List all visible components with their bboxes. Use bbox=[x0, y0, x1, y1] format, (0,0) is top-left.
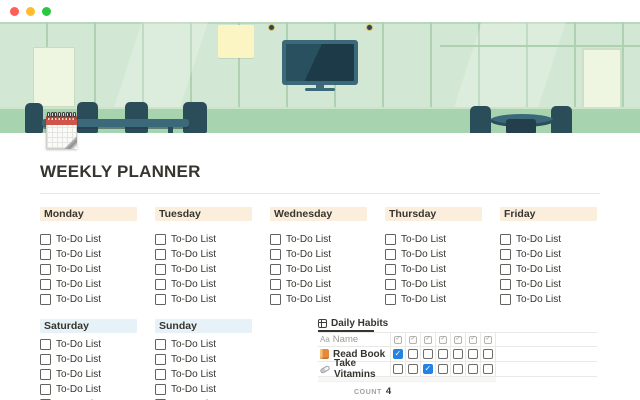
habit-checkbox[interactable] bbox=[408, 349, 418, 359]
habit-check-cell[interactable] bbox=[421, 362, 436, 377]
todo-label[interactable]: To-Do List bbox=[56, 384, 101, 395]
habit-checkbox[interactable] bbox=[483, 349, 493, 359]
header-filler-cell bbox=[496, 333, 597, 347]
habit-check-cell[interactable] bbox=[451, 347, 466, 362]
cover-tv bbox=[282, 40, 358, 85]
todo-item: To-Do List bbox=[155, 292, 252, 307]
checkbox-column-header[interactable] bbox=[481, 333, 496, 347]
todo-checkbox[interactable] bbox=[500, 279, 511, 290]
habit-check-cell[interactable] bbox=[451, 362, 466, 377]
todo-checkbox[interactable] bbox=[270, 279, 281, 290]
todo-item: To-Do List bbox=[155, 262, 252, 277]
todo-label[interactable]: To-Do List bbox=[401, 234, 446, 245]
day-header[interactable]: Wednesday bbox=[270, 207, 367, 221]
day-header[interactable]: Thursday bbox=[385, 207, 482, 221]
count-label: COUNT bbox=[354, 389, 382, 396]
cover-flipchart-board bbox=[33, 47, 75, 107]
cover-tv-screen bbox=[286, 44, 354, 81]
habit-checkbox[interactable] bbox=[423, 364, 433, 374]
day-header[interactable]: Monday bbox=[40, 207, 137, 221]
count-footer[interactable]: COUNT 4 bbox=[318, 386, 597, 397]
habits-table: AaNameRead BookTake Vitamins bbox=[318, 333, 597, 377]
todo-label[interactable]: To-Do List bbox=[56, 249, 101, 260]
todo-label[interactable]: To-Do List bbox=[401, 249, 446, 260]
book-emoji-icon bbox=[320, 349, 329, 359]
todo-list: To-Do ListTo-Do ListTo-Do ListTo-Do List… bbox=[155, 232, 252, 307]
day-column-tuesday: TuesdayTo-Do ListTo-Do ListTo-Do ListTo-… bbox=[155, 207, 252, 307]
todo-checkbox[interactable] bbox=[155, 354, 166, 365]
todo-label[interactable]: To-Do List bbox=[401, 264, 446, 275]
tab-rule bbox=[318, 330, 597, 333]
name-column-label: Name bbox=[333, 334, 358, 345]
todo-checkbox[interactable] bbox=[270, 234, 281, 245]
todo-label[interactable]: To-Do List bbox=[171, 384, 216, 395]
todo-item: To-Do List bbox=[40, 352, 137, 367]
cover-chair bbox=[506, 119, 536, 133]
todo-item: To-Do List bbox=[385, 292, 482, 307]
count-value: 4 bbox=[386, 386, 391, 397]
todo-label[interactable]: To-Do List bbox=[171, 234, 216, 245]
cover-wall-seam bbox=[440, 45, 640, 47]
todo-item: To-Do List bbox=[270, 292, 367, 307]
todo-item: To-Do List bbox=[500, 277, 597, 292]
todo-checkbox[interactable] bbox=[155, 249, 166, 260]
cover-image bbox=[0, 22, 640, 133]
todo-checkbox[interactable] bbox=[500, 234, 511, 245]
day-column-thursday: ThursdayTo-Do ListTo-Do ListTo-Do ListTo… bbox=[385, 207, 482, 307]
name-column-header[interactable]: AaName bbox=[318, 333, 391, 347]
checkbox-column-header[interactable] bbox=[406, 333, 421, 347]
cover-chair bbox=[77, 102, 98, 133]
todo-checkbox[interactable] bbox=[155, 264, 166, 275]
cover-chair bbox=[183, 102, 207, 133]
habit-checkbox[interactable] bbox=[468, 364, 478, 374]
todo-label[interactable]: To-Do List bbox=[171, 339, 216, 350]
todo-label[interactable]: To-Do List bbox=[56, 369, 101, 380]
todo-list: To-Do ListTo-Do ListTo-Do ListTo-Do List… bbox=[40, 232, 137, 307]
todo-item: To-Do List bbox=[155, 232, 252, 247]
day-header[interactable]: Friday bbox=[500, 207, 597, 221]
maximize-button[interactable] bbox=[42, 7, 51, 16]
todo-item: To-Do List bbox=[40, 337, 137, 352]
todo-label[interactable]: To-Do List bbox=[516, 279, 561, 290]
todo-label[interactable]: To-Do List bbox=[56, 339, 101, 350]
habit-check-cell[interactable] bbox=[391, 362, 406, 377]
todo-item: To-Do List bbox=[385, 232, 482, 247]
day-column-sunday: SundayTo-Do ListTo-Do ListTo-Do ListTo-D… bbox=[155, 319, 252, 400]
cover-table-leg bbox=[168, 127, 173, 133]
todo-checkbox[interactable] bbox=[270, 294, 281, 305]
habit-check-cell[interactable] bbox=[466, 362, 481, 377]
habit-checkbox[interactable] bbox=[393, 349, 403, 359]
habits-view-tab[interactable]: Daily Habits bbox=[318, 317, 597, 329]
todo-item: To-Do List bbox=[385, 277, 482, 292]
close-button[interactable] bbox=[10, 7, 19, 16]
day-header[interactable]: Saturday bbox=[40, 319, 137, 333]
todo-list: To-Do ListTo-Do ListTo-Do ListTo-Do List… bbox=[270, 232, 367, 307]
todo-item: To-Do List bbox=[270, 247, 367, 262]
habit-checkbox[interactable] bbox=[423, 349, 433, 359]
todo-checkbox[interactable] bbox=[40, 339, 51, 350]
pill-emoji-icon bbox=[319, 364, 330, 373]
cover-chair bbox=[125, 102, 148, 133]
todo-item: To-Do List bbox=[385, 262, 482, 277]
todo-checkbox[interactable] bbox=[385, 264, 396, 275]
row-filler-cell bbox=[496, 347, 597, 362]
cover-tv-base bbox=[305, 88, 335, 91]
day-column-friday: FridayTo-Do ListTo-Do ListTo-Do ListTo-D… bbox=[500, 207, 597, 307]
habit-name: Take Vitamins bbox=[334, 358, 390, 380]
minimize-button[interactable] bbox=[26, 7, 35, 16]
todo-item: To-Do List bbox=[155, 367, 252, 382]
habit-checkbox[interactable] bbox=[453, 364, 463, 374]
habits-tab-label: Daily Habits bbox=[331, 318, 388, 329]
checkbox-column-icon bbox=[469, 336, 477, 344]
cover-wall-pin bbox=[268, 24, 275, 31]
todo-checkbox[interactable] bbox=[40, 234, 51, 245]
todo-label[interactable]: To-Do List bbox=[286, 234, 331, 245]
habit-check-cell[interactable] bbox=[436, 347, 451, 362]
todo-item: To-Do List bbox=[40, 382, 137, 397]
habit-check-cell[interactable] bbox=[406, 347, 421, 362]
todo-checkbox[interactable] bbox=[40, 384, 51, 395]
cover-yellow-poster bbox=[218, 25, 254, 58]
todo-list: To-Do ListTo-Do ListTo-Do ListTo-Do List… bbox=[500, 232, 597, 307]
habit-checkbox[interactable] bbox=[393, 364, 403, 374]
todo-item: To-Do List bbox=[40, 277, 137, 292]
window-titlebar bbox=[0, 0, 640, 22]
todo-item: To-Do List bbox=[270, 262, 367, 277]
day-column-wednesday: WednesdayTo-Do ListTo-Do ListTo-Do ListT… bbox=[270, 207, 367, 307]
todo-checkbox[interactable] bbox=[500, 249, 511, 260]
todo-checkbox[interactable] bbox=[155, 294, 166, 305]
todo-item: To-Do List bbox=[40, 262, 137, 277]
text-property-icon: Aa bbox=[320, 335, 330, 344]
calendar-icon-header bbox=[46, 116, 77, 125]
daily-habits-database: Daily Habits AaNameRead BookTake Vitamin… bbox=[318, 317, 597, 397]
todo-label[interactable]: To-Do List bbox=[401, 294, 446, 305]
todo-checkbox[interactable] bbox=[40, 279, 51, 290]
habit-check-cell[interactable] bbox=[421, 347, 436, 362]
todo-label[interactable]: To-Do List bbox=[56, 234, 101, 245]
todo-checkbox[interactable] bbox=[40, 264, 51, 275]
todo-item: To-Do List bbox=[270, 277, 367, 292]
todo-checkbox[interactable] bbox=[270, 249, 281, 260]
todo-item: To-Do List bbox=[270, 232, 367, 247]
todo-checkbox[interactable] bbox=[155, 234, 166, 245]
page-icon-calendar[interactable] bbox=[46, 112, 77, 149]
habit-checkbox[interactable] bbox=[468, 349, 478, 359]
day-column-saturday: SaturdayTo-Do ListTo-Do ListTo-Do ListTo… bbox=[40, 319, 137, 400]
day-column-monday: MondayTo-Do ListTo-Do ListTo-Do ListTo-D… bbox=[40, 207, 137, 307]
checkbox-column-icon bbox=[454, 336, 462, 344]
todo-label[interactable]: To-Do List bbox=[56, 354, 101, 365]
habit-checkbox[interactable] bbox=[408, 364, 418, 374]
checkbox-column-header[interactable] bbox=[466, 333, 481, 347]
todo-label[interactable]: To-Do List bbox=[171, 369, 216, 380]
habit-check-cell[interactable] bbox=[391, 347, 406, 362]
todo-label[interactable]: To-Do List bbox=[516, 234, 561, 245]
todo-checkbox[interactable] bbox=[40, 249, 51, 260]
todo-item: To-Do List bbox=[500, 232, 597, 247]
checkbox-column-header[interactable] bbox=[436, 333, 451, 347]
todo-checkbox[interactable] bbox=[500, 264, 511, 275]
calendar-icon-rings bbox=[47, 112, 76, 117]
habit-check-cell[interactable] bbox=[466, 347, 481, 362]
habit-check-cell[interactable] bbox=[481, 347, 496, 362]
cover-whiteboard bbox=[582, 48, 622, 110]
todo-checkbox[interactable] bbox=[385, 249, 396, 260]
todo-label[interactable]: To-Do List bbox=[171, 354, 216, 365]
todo-label[interactable]: To-Do List bbox=[56, 294, 101, 305]
todo-item: To-Do List bbox=[155, 382, 252, 397]
todo-list: To-Do ListTo-Do ListTo-Do ListTo-Do List… bbox=[155, 337, 252, 400]
todo-item: To-Do List bbox=[155, 352, 252, 367]
habit-check-cell[interactable] bbox=[436, 362, 451, 377]
todo-label[interactable]: To-Do List bbox=[171, 294, 216, 305]
todo-checkbox[interactable] bbox=[40, 354, 51, 365]
todo-item: To-Do List bbox=[40, 247, 137, 262]
todo-checkbox[interactable] bbox=[155, 369, 166, 380]
checkbox-column-icon bbox=[394, 336, 402, 344]
todo-label[interactable]: To-Do List bbox=[516, 249, 561, 260]
todo-item: To-Do List bbox=[385, 247, 482, 262]
todo-label[interactable]: To-Do List bbox=[516, 294, 561, 305]
habit-checkbox[interactable] bbox=[438, 364, 448, 374]
todo-label[interactable]: To-Do List bbox=[171, 264, 216, 275]
cover-chair bbox=[551, 106, 572, 133]
todo-item: To-Do List bbox=[155, 337, 252, 352]
checkbox-column-icon bbox=[409, 336, 417, 344]
todo-checkbox[interactable] bbox=[40, 369, 51, 380]
todo-checkbox[interactable] bbox=[385, 279, 396, 290]
habit-check-cell[interactable] bbox=[481, 362, 496, 377]
active-tab-underline bbox=[318, 330, 374, 332]
day-header[interactable]: Sunday bbox=[155, 319, 252, 333]
cover-wall-pin bbox=[366, 24, 373, 31]
habit-name-cell[interactable]: Take Vitamins bbox=[318, 362, 391, 377]
cover-chair bbox=[470, 106, 491, 133]
todo-label[interactable]: To-Do List bbox=[286, 279, 331, 290]
habit-checkbox[interactable] bbox=[438, 349, 448, 359]
todo-item: To-Do List bbox=[500, 262, 597, 277]
habit-checkbox[interactable] bbox=[453, 349, 463, 359]
todo-label[interactable]: To-Do List bbox=[516, 264, 561, 275]
todo-checkbox[interactable] bbox=[155, 339, 166, 350]
checkbox-column-icon bbox=[424, 336, 432, 344]
checkbox-column-header[interactable] bbox=[391, 333, 406, 347]
todo-label[interactable]: To-Do List bbox=[171, 249, 216, 260]
todo-label[interactable]: To-Do List bbox=[286, 249, 331, 260]
todo-checkbox[interactable] bbox=[40, 294, 51, 305]
todo-item: To-Do List bbox=[500, 292, 597, 307]
todo-label[interactable]: To-Do List bbox=[56, 264, 101, 275]
day-header[interactable]: Tuesday bbox=[155, 207, 252, 221]
todo-item: To-Do List bbox=[500, 247, 597, 262]
page-title[interactable]: WEEKLY PLANNER bbox=[40, 162, 201, 182]
todo-list: To-Do ListTo-Do ListTo-Do ListTo-Do List… bbox=[40, 337, 137, 400]
row-filler-cell bbox=[496, 362, 597, 377]
checkbox-column-header[interactable] bbox=[421, 333, 436, 347]
habit-checkbox[interactable] bbox=[483, 364, 493, 374]
checkbox-column-icon bbox=[484, 336, 492, 344]
todo-checkbox[interactable] bbox=[155, 279, 166, 290]
todo-label[interactable]: To-Do List bbox=[401, 279, 446, 290]
todo-item: To-Do List bbox=[40, 292, 137, 307]
table-view-icon bbox=[318, 319, 327, 328]
todo-checkbox[interactable] bbox=[500, 294, 511, 305]
habit-check-cell[interactable] bbox=[406, 362, 421, 377]
todo-item: To-Do List bbox=[155, 277, 252, 292]
todo-label[interactable]: To-Do List bbox=[56, 279, 101, 290]
todo-checkbox[interactable] bbox=[385, 294, 396, 305]
todo-checkbox[interactable] bbox=[155, 384, 166, 395]
todo-item: To-Do List bbox=[40, 232, 137, 247]
divider bbox=[40, 193, 600, 194]
todo-label[interactable]: To-Do List bbox=[171, 279, 216, 290]
todo-label[interactable]: To-Do List bbox=[286, 294, 331, 305]
todo-checkbox[interactable] bbox=[270, 264, 281, 275]
todo-checkbox[interactable] bbox=[385, 234, 396, 245]
checkbox-column-header[interactable] bbox=[451, 333, 466, 347]
cover-chair bbox=[25, 103, 43, 133]
todo-label[interactable]: To-Do List bbox=[286, 264, 331, 275]
checkbox-column-icon bbox=[439, 336, 447, 344]
notion-weekly-planner-page: WEEKLY PLANNER Daily Habits AaNameRead B… bbox=[0, 0, 640, 400]
todo-list: To-Do ListTo-Do ListTo-Do ListTo-Do List… bbox=[385, 232, 482, 307]
todo-item: To-Do List bbox=[40, 367, 137, 382]
todo-item: To-Do List bbox=[155, 247, 252, 262]
